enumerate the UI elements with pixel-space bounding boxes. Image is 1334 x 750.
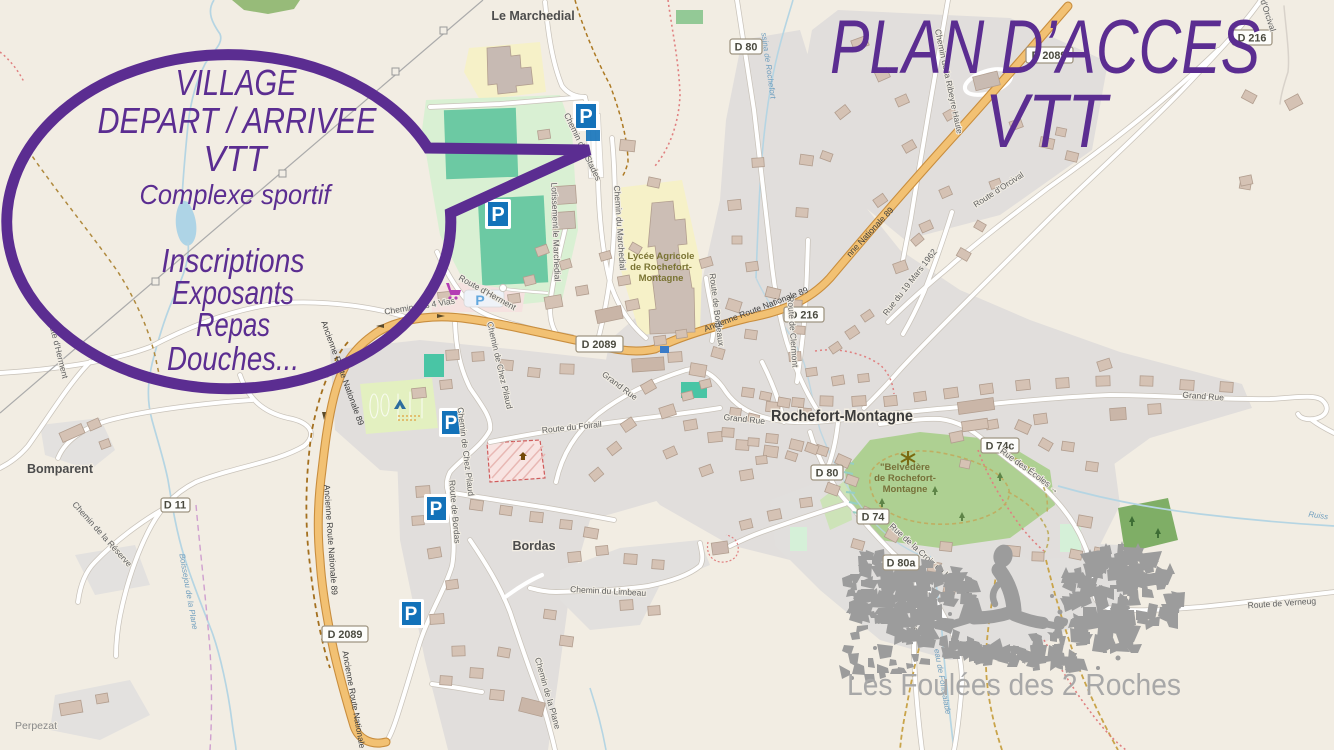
svg-text:PLAN D’ACCES: PLAN D’ACCES	[830, 5, 1260, 90]
svg-text:D 2089: D 2089	[582, 339, 617, 351]
svg-text:Bomparent: Bomparent	[27, 462, 94, 476]
svg-text:VTT: VTT	[204, 138, 270, 179]
svg-text:P: P	[445, 413, 458, 434]
svg-text:D 80: D 80	[735, 42, 758, 54]
svg-text:D 80a: D 80a	[887, 558, 917, 570]
svg-text:Montagne: Montagne	[883, 484, 928, 495]
svg-text:D 2089: D 2089	[328, 629, 363, 641]
svg-text:D 80: D 80	[816, 468, 839, 480]
svg-text:Le Marchedial: Le Marchedial	[491, 9, 574, 23]
svg-text:Les Foulées des 2 Roches: Les Foulées des 2 Roches	[847, 667, 1181, 702]
svg-text:P: P	[579, 106, 592, 128]
svg-text:Rochefort-Montagne: Rochefort-Montagne	[771, 408, 913, 425]
svg-text:Montagne: Montagne	[639, 273, 684, 284]
svg-text:P: P	[405, 604, 418, 625]
svg-text:P: P	[491, 204, 504, 226]
svg-text:Bordas: Bordas	[512, 539, 555, 553]
svg-text:"Belvédère: "Belvédère	[880, 462, 930, 473]
svg-text:P: P	[430, 499, 443, 520]
svg-text:D 74: D 74	[862, 512, 885, 524]
svg-text:VILLAGE: VILLAGE	[176, 62, 298, 103]
svg-text:de Rochefort-: de Rochefort-	[874, 473, 936, 484]
svg-text:Lycée Agricole: Lycée Agricole	[628, 251, 695, 262]
svg-text:Douches...: Douches...	[167, 340, 299, 377]
svg-text:de Rochefort-: de Rochefort-	[630, 262, 692, 273]
svg-text:Perpezat: Perpezat	[15, 720, 57, 732]
svg-text:Complexe sportif: Complexe sportif	[140, 179, 334, 210]
svg-text:DEPART / ARRIVEE: DEPART / ARRIVEE	[98, 100, 378, 141]
svg-text:VTT: VTT	[985, 79, 1111, 164]
svg-text:Repas: Repas	[196, 306, 270, 343]
svg-text:D 11: D 11	[164, 500, 186, 512]
